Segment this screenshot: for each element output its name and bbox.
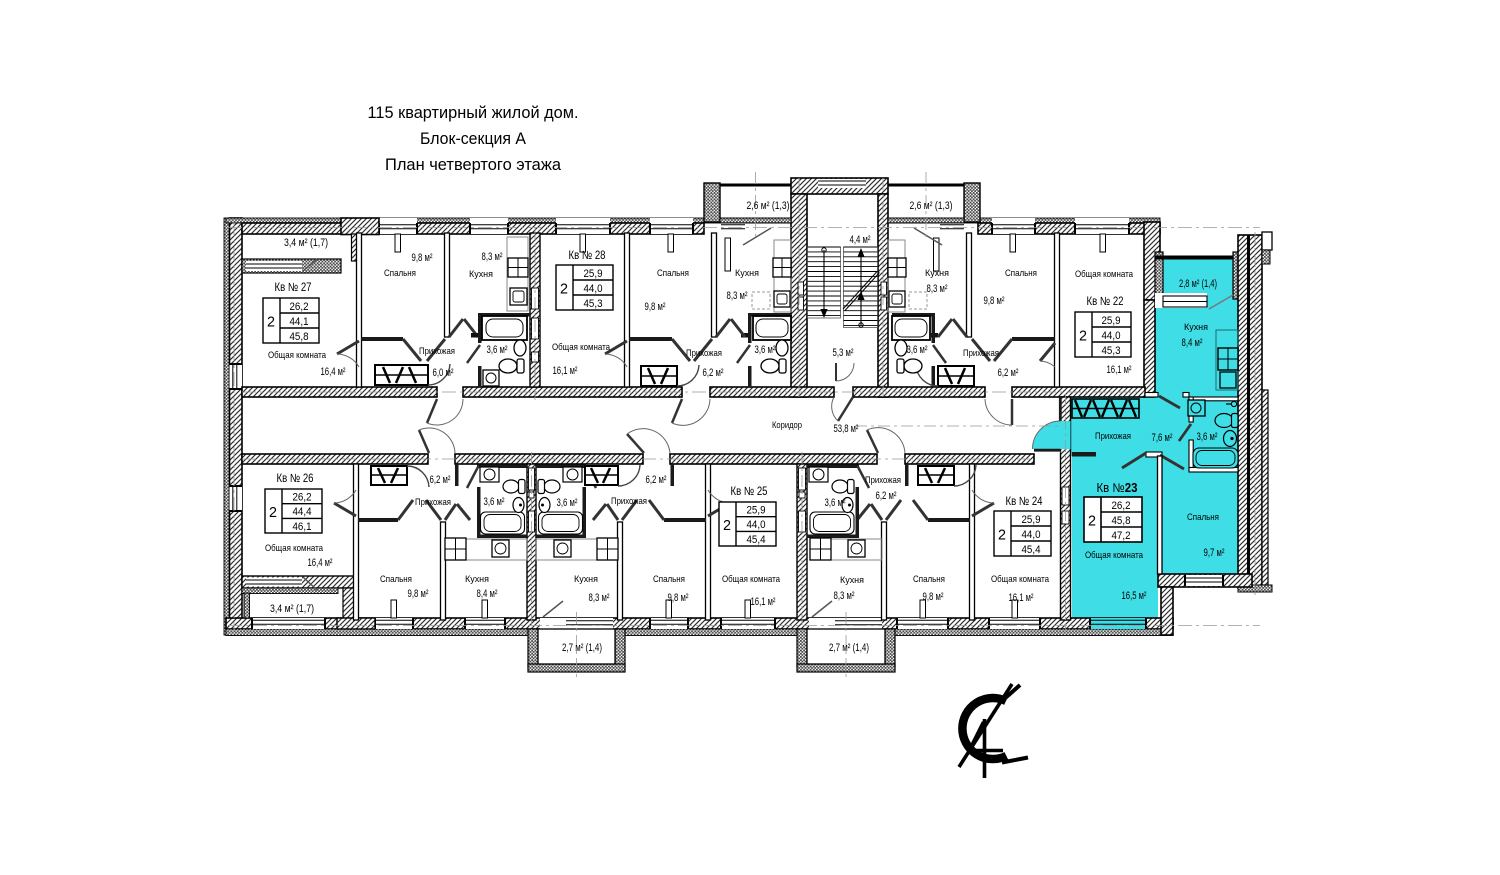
svg-text:Кухня: Кухня <box>469 269 493 280</box>
svg-text:Общая комната: Общая комната <box>265 543 324 554</box>
svg-text:3,6 м²: 3,6 м² <box>484 496 505 508</box>
svg-text:2: 2 <box>723 517 731 534</box>
svg-text:Прихожая: Прихожая <box>865 475 901 486</box>
svg-text:Кв № 25: Кв № 25 <box>731 484 768 498</box>
svg-text:Кухня: Кухня <box>840 575 864 586</box>
svg-text:3,6 м²: 3,6 м² <box>907 344 928 356</box>
svg-text:Общая комната: Общая комната <box>552 342 611 353</box>
svg-text:45,8: 45,8 <box>290 331 309 343</box>
svg-text:8,3 м²: 8,3 м² <box>589 592 610 604</box>
svg-text:Общая комната: Общая комната <box>1085 550 1144 561</box>
svg-text:9,7 м²: 9,7 м² <box>1204 547 1225 559</box>
svg-text:45,3: 45,3 <box>1102 345 1121 357</box>
svg-text:44,0: 44,0 <box>584 283 603 295</box>
svg-text:Спальня: Спальня <box>913 574 945 585</box>
svg-text:4,4 м²: 4,4 м² <box>850 234 871 246</box>
svg-text:Спальня: Спальня <box>384 268 416 279</box>
svg-text:44,0: 44,0 <box>1102 330 1121 342</box>
svg-text:Кухня: Кухня <box>465 574 489 585</box>
svg-text:План четвертого этажа: План четвертого этажа <box>385 155 562 174</box>
svg-text:Прихожая: Прихожая <box>686 348 722 359</box>
svg-text:Кв № 22: Кв № 22 <box>1087 294 1124 308</box>
svg-text:Прихожая: Прихожая <box>419 346 455 357</box>
svg-text:8,3 м²: 8,3 м² <box>834 590 855 602</box>
svg-text:3,6 м²: 3,6 м² <box>1197 431 1218 443</box>
svg-text:9,8 м²: 9,8 м² <box>984 295 1005 307</box>
svg-text:2: 2 <box>1088 513 1096 530</box>
svg-text:44,0: 44,0 <box>747 519 766 531</box>
svg-text:6,2 м²: 6,2 м² <box>998 367 1019 379</box>
svg-text:8,3 м²: 8,3 м² <box>482 251 503 263</box>
svg-text:16,4 м²: 16,4 м² <box>308 557 333 569</box>
svg-text:16,1 м²: 16,1 м² <box>751 596 776 608</box>
svg-text:9,8 м²: 9,8 м² <box>923 591 944 603</box>
svg-text:Спальня: Спальня <box>380 574 412 585</box>
svg-text:2: 2 <box>998 527 1006 544</box>
svg-text:45,3: 45,3 <box>584 298 603 310</box>
svg-text:9,8 м²: 9,8 м² <box>408 588 429 600</box>
svg-text:3,4 м² (1,7): 3,4 м² (1,7) <box>284 237 328 249</box>
svg-text:25,9: 25,9 <box>747 505 766 517</box>
svg-text:Кухня: Кухня <box>1184 322 1208 333</box>
svg-text:3,4 м² (1,7): 3,4 м² (1,7) <box>270 603 314 615</box>
svg-text:26,2: 26,2 <box>1112 500 1131 512</box>
svg-text:Кухня: Кухня <box>735 268 759 279</box>
svg-text:25,9: 25,9 <box>584 268 603 280</box>
svg-text:7,6 м²: 7,6 м² <box>1152 432 1173 444</box>
svg-text:Общая комната: Общая комната <box>991 574 1050 585</box>
svg-text:8,4 м²: 8,4 м² <box>1182 337 1203 349</box>
svg-text:45,8: 45,8 <box>1112 515 1131 527</box>
svg-text:46,1: 46,1 <box>293 521 312 533</box>
svg-text:2: 2 <box>267 314 275 331</box>
svg-text:16,1 м²: 16,1 м² <box>1107 364 1132 376</box>
svg-text:Кв № 28: Кв № 28 <box>569 248 606 262</box>
svg-text:Кухня: Кухня <box>925 268 949 279</box>
svg-text:Кв № 24: Кв № 24 <box>1006 494 1043 508</box>
svg-text:Прихожая: Прихожая <box>415 497 451 508</box>
svg-text:44,0: 44,0 <box>1022 529 1041 541</box>
svg-text:25,9: 25,9 <box>1022 514 1041 526</box>
svg-text:Спальня: Спальня <box>1005 268 1037 279</box>
svg-text:Общая комната: Общая комната <box>1075 269 1134 280</box>
svg-text:Общая комната: Общая комната <box>722 574 781 585</box>
svg-text:Прихожая: Прихожая <box>963 348 999 359</box>
svg-text:16,5 м²: 16,5 м² <box>1122 590 1147 602</box>
svg-text:2,6 м² (1,3): 2,6 м² (1,3) <box>747 200 790 212</box>
svg-text:2: 2 <box>269 504 277 521</box>
svg-text:Блок-секция А: Блок-секция А <box>420 129 527 148</box>
svg-text:Кв № 26: Кв № 26 <box>277 471 314 485</box>
svg-text:2,8 м² (1,4): 2,8 м² (1,4) <box>1179 278 1217 290</box>
svg-text:26,2: 26,2 <box>293 492 312 504</box>
svg-text:3,6 м²: 3,6 м² <box>487 344 508 356</box>
svg-text:8,3 м²: 8,3 м² <box>727 290 748 302</box>
svg-text:3,6 м²: 3,6 м² <box>825 497 846 509</box>
svg-text:44,4: 44,4 <box>293 506 312 518</box>
svg-text:8,4 м²: 8,4 м² <box>477 588 498 600</box>
svg-text:6,2 м²: 6,2 м² <box>646 474 667 486</box>
svg-text:2: 2 <box>1079 328 1087 345</box>
svg-text:6,2 м²: 6,2 м² <box>430 474 451 486</box>
svg-text:47,2: 47,2 <box>1112 530 1131 542</box>
svg-text:Кв №23: Кв №23 <box>1097 481 1138 495</box>
svg-text:25,9: 25,9 <box>1102 315 1121 327</box>
svg-text:45,4: 45,4 <box>747 534 766 546</box>
svg-text:2: 2 <box>560 281 568 298</box>
svg-text:2,6 м² (1,3): 2,6 м² (1,3) <box>910 200 953 212</box>
svg-text:Общая комната: Общая комната <box>268 350 327 361</box>
svg-text:Прихожая: Прихожая <box>611 496 647 507</box>
svg-text:6,0 м²: 6,0 м² <box>433 367 454 379</box>
svg-text:44,1: 44,1 <box>290 316 309 328</box>
svg-text:26,2: 26,2 <box>290 301 309 313</box>
svg-text:9,8 м²: 9,8 м² <box>645 301 666 313</box>
svg-text:Спальня: Спальня <box>1187 512 1219 523</box>
svg-text:2,7 м² (1,4): 2,7 м² (1,4) <box>829 642 869 654</box>
svg-text:9,8 м²: 9,8 м² <box>412 252 433 264</box>
svg-text:2,7 м² (1,4): 2,7 м² (1,4) <box>562 642 602 654</box>
svg-text:16,4 м²: 16,4 м² <box>321 366 346 378</box>
svg-text:5,3 м²: 5,3 м² <box>833 347 854 359</box>
svg-text:9,8 м²: 9,8 м² <box>668 592 689 604</box>
svg-text:16,1 м²: 16,1 м² <box>1009 592 1034 604</box>
svg-text:53,8 м²: 53,8 м² <box>834 423 859 435</box>
svg-text:6,2 м²: 6,2 м² <box>703 367 724 379</box>
svg-text:Кв № 27: Кв № 27 <box>275 280 312 294</box>
svg-text:16,1 м²: 16,1 м² <box>553 365 578 377</box>
svg-text:Кухня: Кухня <box>574 574 598 585</box>
svg-text:3,6 м²: 3,6 м² <box>557 497 578 509</box>
svg-text:Коридор: Коридор <box>772 420 802 431</box>
svg-text:45,4: 45,4 <box>1022 544 1041 556</box>
svg-text:3,6 м²: 3,6 м² <box>755 344 776 356</box>
svg-text:6,2 м²: 6,2 м² <box>876 490 897 502</box>
svg-text:115 квартирный жилой дом.: 115 квартирный жилой дом. <box>368 103 579 122</box>
svg-text:Прихожая: Прихожая <box>1095 431 1131 442</box>
svg-text:Спальня: Спальня <box>657 268 689 279</box>
svg-text:8,3 м²: 8,3 м² <box>927 283 948 295</box>
svg-text:Спальня: Спальня <box>653 574 685 585</box>
